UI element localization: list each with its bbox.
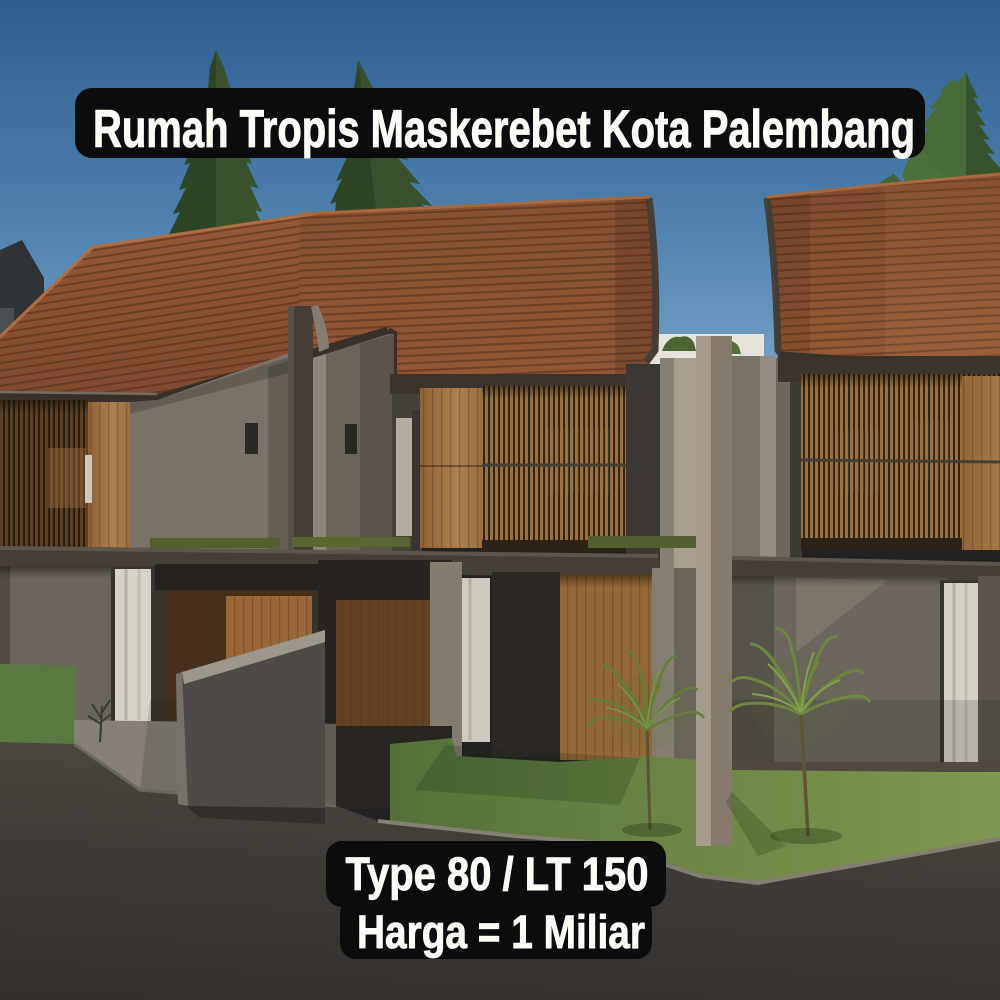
svg-text:Type 80 / LT 150: Type 80 / LT 150: [345, 847, 648, 900]
svg-text:Harga = 1 Miliar: Harga = 1 Miliar: [357, 905, 645, 958]
svg-text:Rumah Tropis Maskerebet Kota P: Rumah Tropis Maskerebet Kota Palembang: [93, 100, 915, 159]
